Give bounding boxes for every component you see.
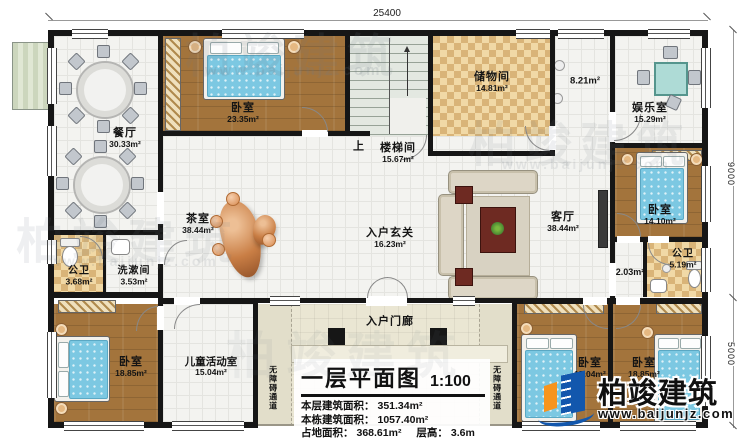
room-label-porch: 入户门廊: [366, 316, 414, 329]
window-icon: [64, 421, 144, 431]
chair-icon: [59, 82, 72, 95]
window-icon: [516, 29, 550, 39]
bed-icon: [54, 336, 110, 402]
window-icon: [453, 296, 475, 306]
stat-footprint-height: 占地面积：368.61m² 层高：3.6m: [301, 427, 485, 441]
door-gap: [617, 236, 640, 243]
sink-icon: [111, 239, 130, 255]
title-block: 一层平面图 1:100 本层建筑面积：351.34m² 本栋建筑面积：1057.…: [294, 359, 490, 443]
room-label-entertainment: 娱乐室15.29m²: [632, 102, 668, 124]
chair-icon: [134, 82, 147, 95]
dimension-right-upper: 9000: [726, 162, 736, 186]
bed-icon: [203, 38, 285, 100]
room-label-bath-left: 公卫3.68m²: [66, 265, 93, 286]
floor-plan: 餐厅30.33m² 卧室23.35m² 上 楼梯间15.67m² 储物间14.8…: [0, 0, 750, 448]
window-icon: [701, 248, 711, 292]
door-gap: [549, 126, 556, 150]
door-gap: [157, 306, 164, 330]
window-icon: [270, 296, 300, 306]
area-label-lower-hall: 2.03m²: [616, 267, 645, 277]
chair-icon: [97, 45, 110, 58]
room-label-storage: 储物间14.81m²: [474, 71, 510, 93]
dimension-line-right: [733, 30, 734, 428]
side-table-icon: [455, 268, 473, 286]
nightstand-icon: [520, 322, 533, 335]
stairs-arrow: [407, 52, 408, 96]
tea-stool-icon: [226, 192, 240, 206]
chair-icon: [637, 70, 650, 85]
stairs-divider: [389, 38, 390, 134]
dimension-top: 25400: [352, 8, 422, 19]
wall-segment: [610, 143, 708, 148]
door-gap: [157, 240, 164, 264]
column-icon: [430, 328, 447, 345]
chair-icon: [131, 177, 144, 190]
window-icon: [558, 29, 604, 39]
wall-opening: [157, 192, 164, 224]
brand-logo: 柏竣建筑 www.baijunjz.com: [536, 364, 726, 434]
door-gap: [583, 297, 607, 305]
sink-icon: [650, 279, 667, 293]
chair-icon: [56, 177, 69, 190]
wall-segment: [428, 30, 433, 156]
window-icon: [47, 126, 57, 176]
room-label-bedroom-right: 卧室14.10m²: [644, 204, 676, 226]
sofa-icon: [438, 194, 464, 276]
chair-icon: [688, 70, 701, 85]
dimension-right-lower: 5000: [726, 342, 736, 366]
room-label-foyer: 入户玄关16.23m²: [366, 227, 414, 249]
logo-site-text: www.baijunjz.com: [598, 406, 734, 421]
room-label-tearoom: 茶室38.44m²: [182, 213, 214, 235]
plant-icon: [491, 222, 504, 235]
window-icon: [72, 29, 108, 39]
wall-segment: [103, 234, 106, 292]
window-icon: [222, 29, 304, 39]
wall-segment: [512, 298, 517, 428]
room-label-kids: 儿童活动室15.04m²: [185, 356, 238, 378]
toilet-icon: [688, 269, 701, 288]
stairs-arrowhead-icon: [404, 46, 410, 52]
wall-segment: [48, 292, 160, 298]
chair-icon: [663, 46, 678, 59]
area-label-upper-hall: 8.21m²: [570, 77, 600, 88]
page-title: 一层平面图: [301, 361, 421, 393]
stairs-icon: [390, 98, 426, 134]
door-gap: [648, 236, 669, 243]
room-label-bath-right: 公卫5.19m²: [670, 248, 697, 269]
room-label-living: 客厅38.44m²: [547, 211, 579, 233]
wall-light-icon: [554, 60, 565, 71]
tea-stool-icon: [212, 243, 225, 256]
room-label-washroom: 洗漱间3.53m²: [118, 265, 151, 286]
game-table-icon: [654, 62, 688, 96]
nightstand-icon: [55, 402, 68, 415]
window-icon: [701, 166, 711, 222]
wall-segment: [158, 298, 258, 304]
window-icon: [648, 29, 690, 39]
wall-segment: [428, 151, 555, 156]
wall-segment: [345, 131, 370, 136]
wall-segment: [48, 30, 708, 36]
ramp-label-right: 无障碍通道: [492, 366, 501, 411]
stat-building-area: 本栋建筑面积：1057.40m²: [301, 414, 485, 428]
ramp-label-left: 无障碍通道: [268, 366, 277, 411]
chair-icon: [97, 120, 110, 133]
side-table-icon: [455, 186, 473, 204]
nightstand-icon: [287, 40, 301, 54]
tv-cabinet-icon: [598, 190, 608, 248]
wall-segment: [253, 298, 258, 428]
dimension-line-top: [48, 20, 708, 21]
chair-icon: [94, 140, 107, 153]
stat-floor-area: 本层建筑面积：351.34m²: [301, 400, 485, 414]
window-icon: [172, 421, 244, 431]
room-label-dining: 餐厅30.33m²: [109, 127, 141, 149]
window-icon: [47, 240, 57, 264]
window-icon: [47, 332, 57, 398]
deck-icon: [12, 42, 50, 110]
nightstand-icon: [621, 153, 634, 166]
wardrobe-icon: [58, 300, 116, 313]
toilet-icon: [62, 246, 78, 267]
column-icon: [328, 328, 345, 345]
door-gap: [616, 297, 640, 305]
room-label-bedroom-bl: 卧室18.85m²: [115, 356, 147, 378]
room-label-stairwell: 楼梯间15.67m²: [380, 142, 416, 164]
wardrobe-icon: [165, 38, 181, 131]
tea-stool-icon: [262, 233, 276, 247]
window-icon: [701, 48, 711, 108]
nightstand-icon: [641, 326, 654, 339]
plan-scale: 1:100: [430, 373, 471, 391]
stairs-up-label: 上: [353, 141, 365, 154]
upper-hall-floor: [555, 36, 610, 148]
wall-segment: [345, 30, 350, 136]
room-label-bedroom-top: 卧室23.35m²: [227, 102, 259, 124]
nightstand-icon: [188, 40, 202, 54]
window-icon: [47, 48, 57, 104]
logo-building-icon: [538, 368, 594, 426]
chair-icon: [94, 215, 107, 228]
